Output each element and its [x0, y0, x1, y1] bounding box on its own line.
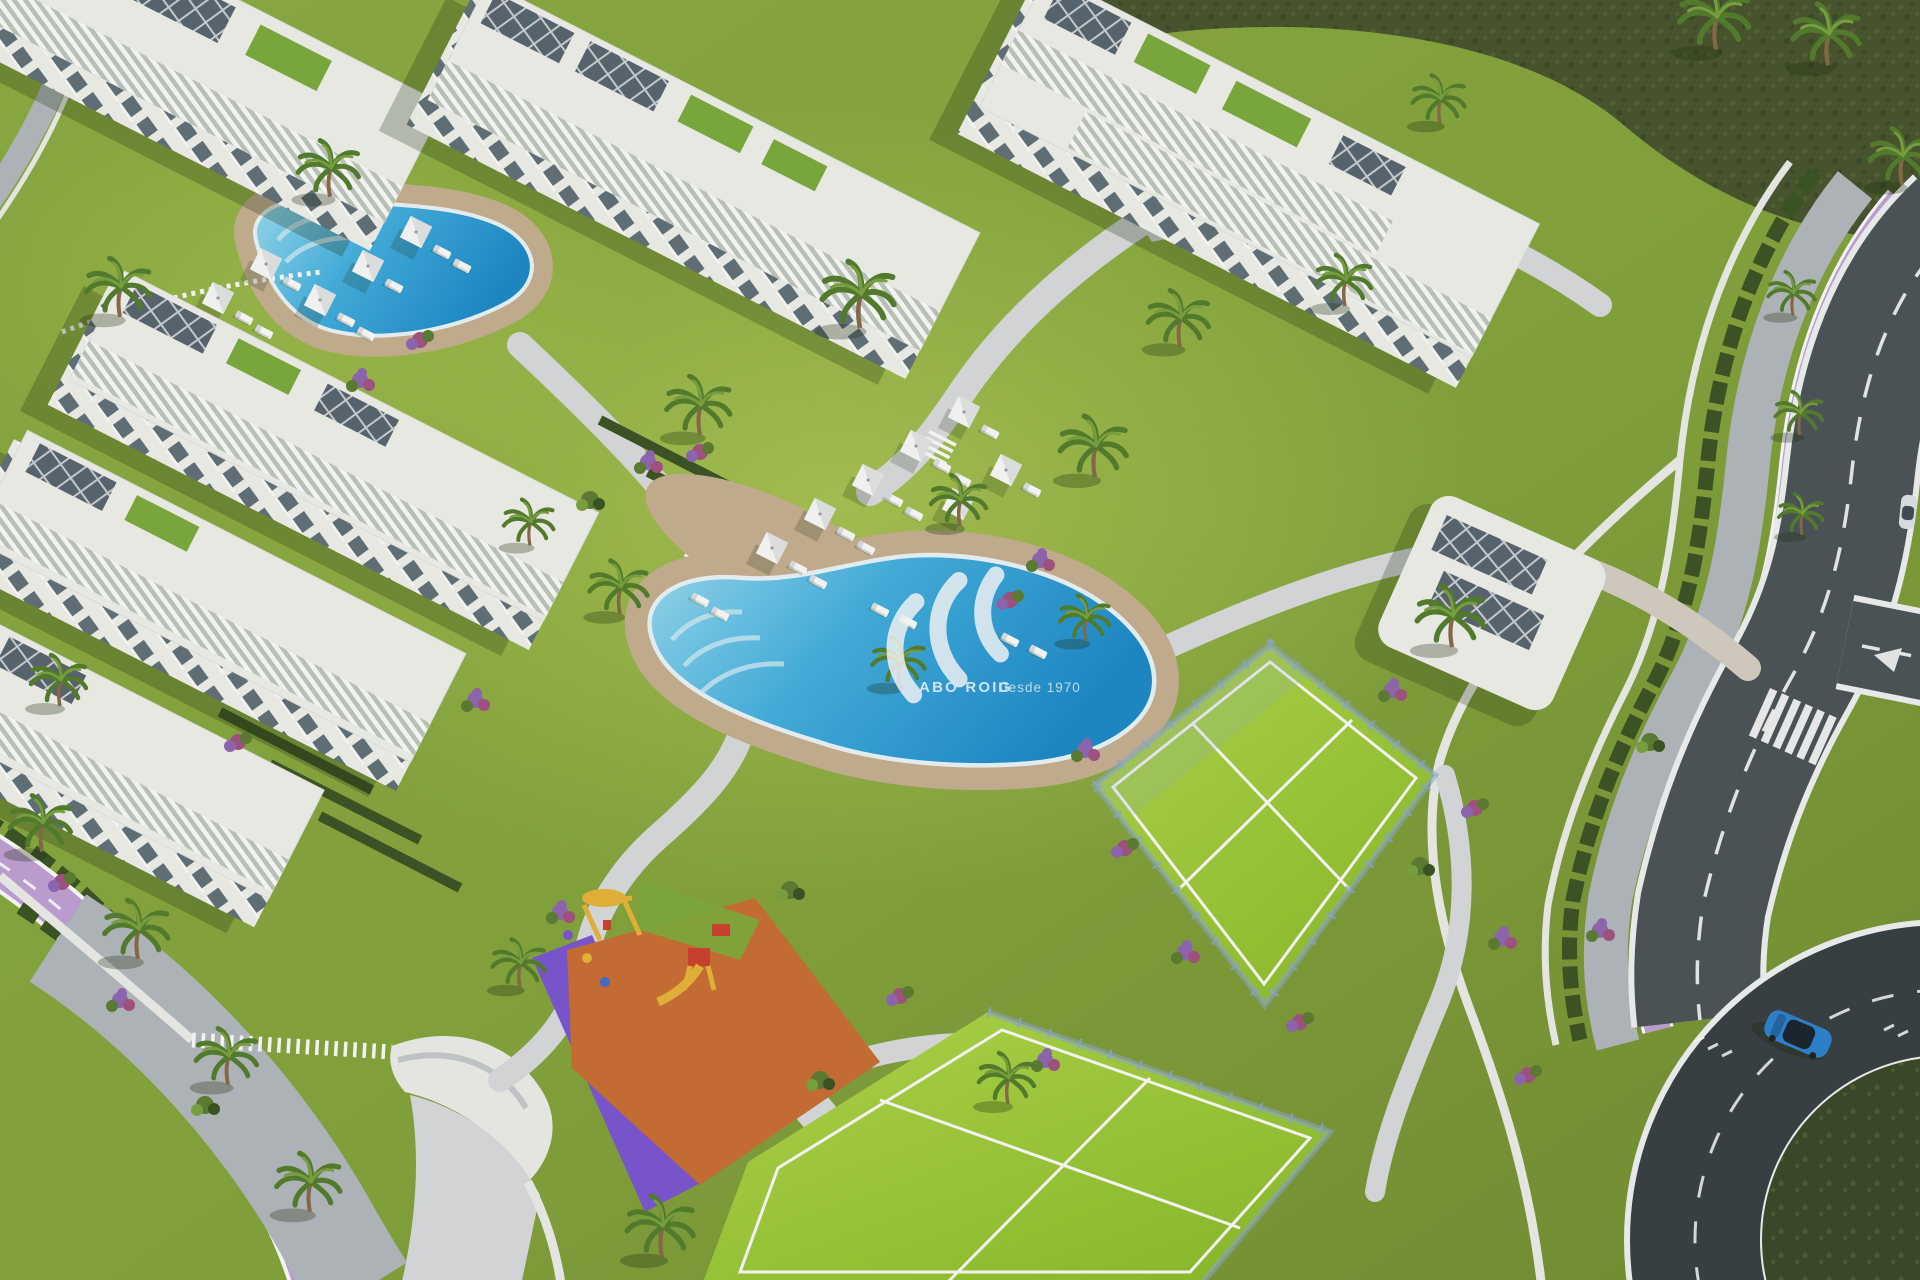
scene-vignette: [0, 0, 1920, 1280]
watermark-tagline: Desde 1970: [998, 680, 1081, 695]
resort-scene: CABO ROIG Desde 1970: [0, 0, 1920, 1280]
watermark-brand: CABO ROIG: [906, 679, 1012, 696]
aerial-render-screenshot: CABO ROIG Desde 1970: [0, 0, 1920, 1280]
